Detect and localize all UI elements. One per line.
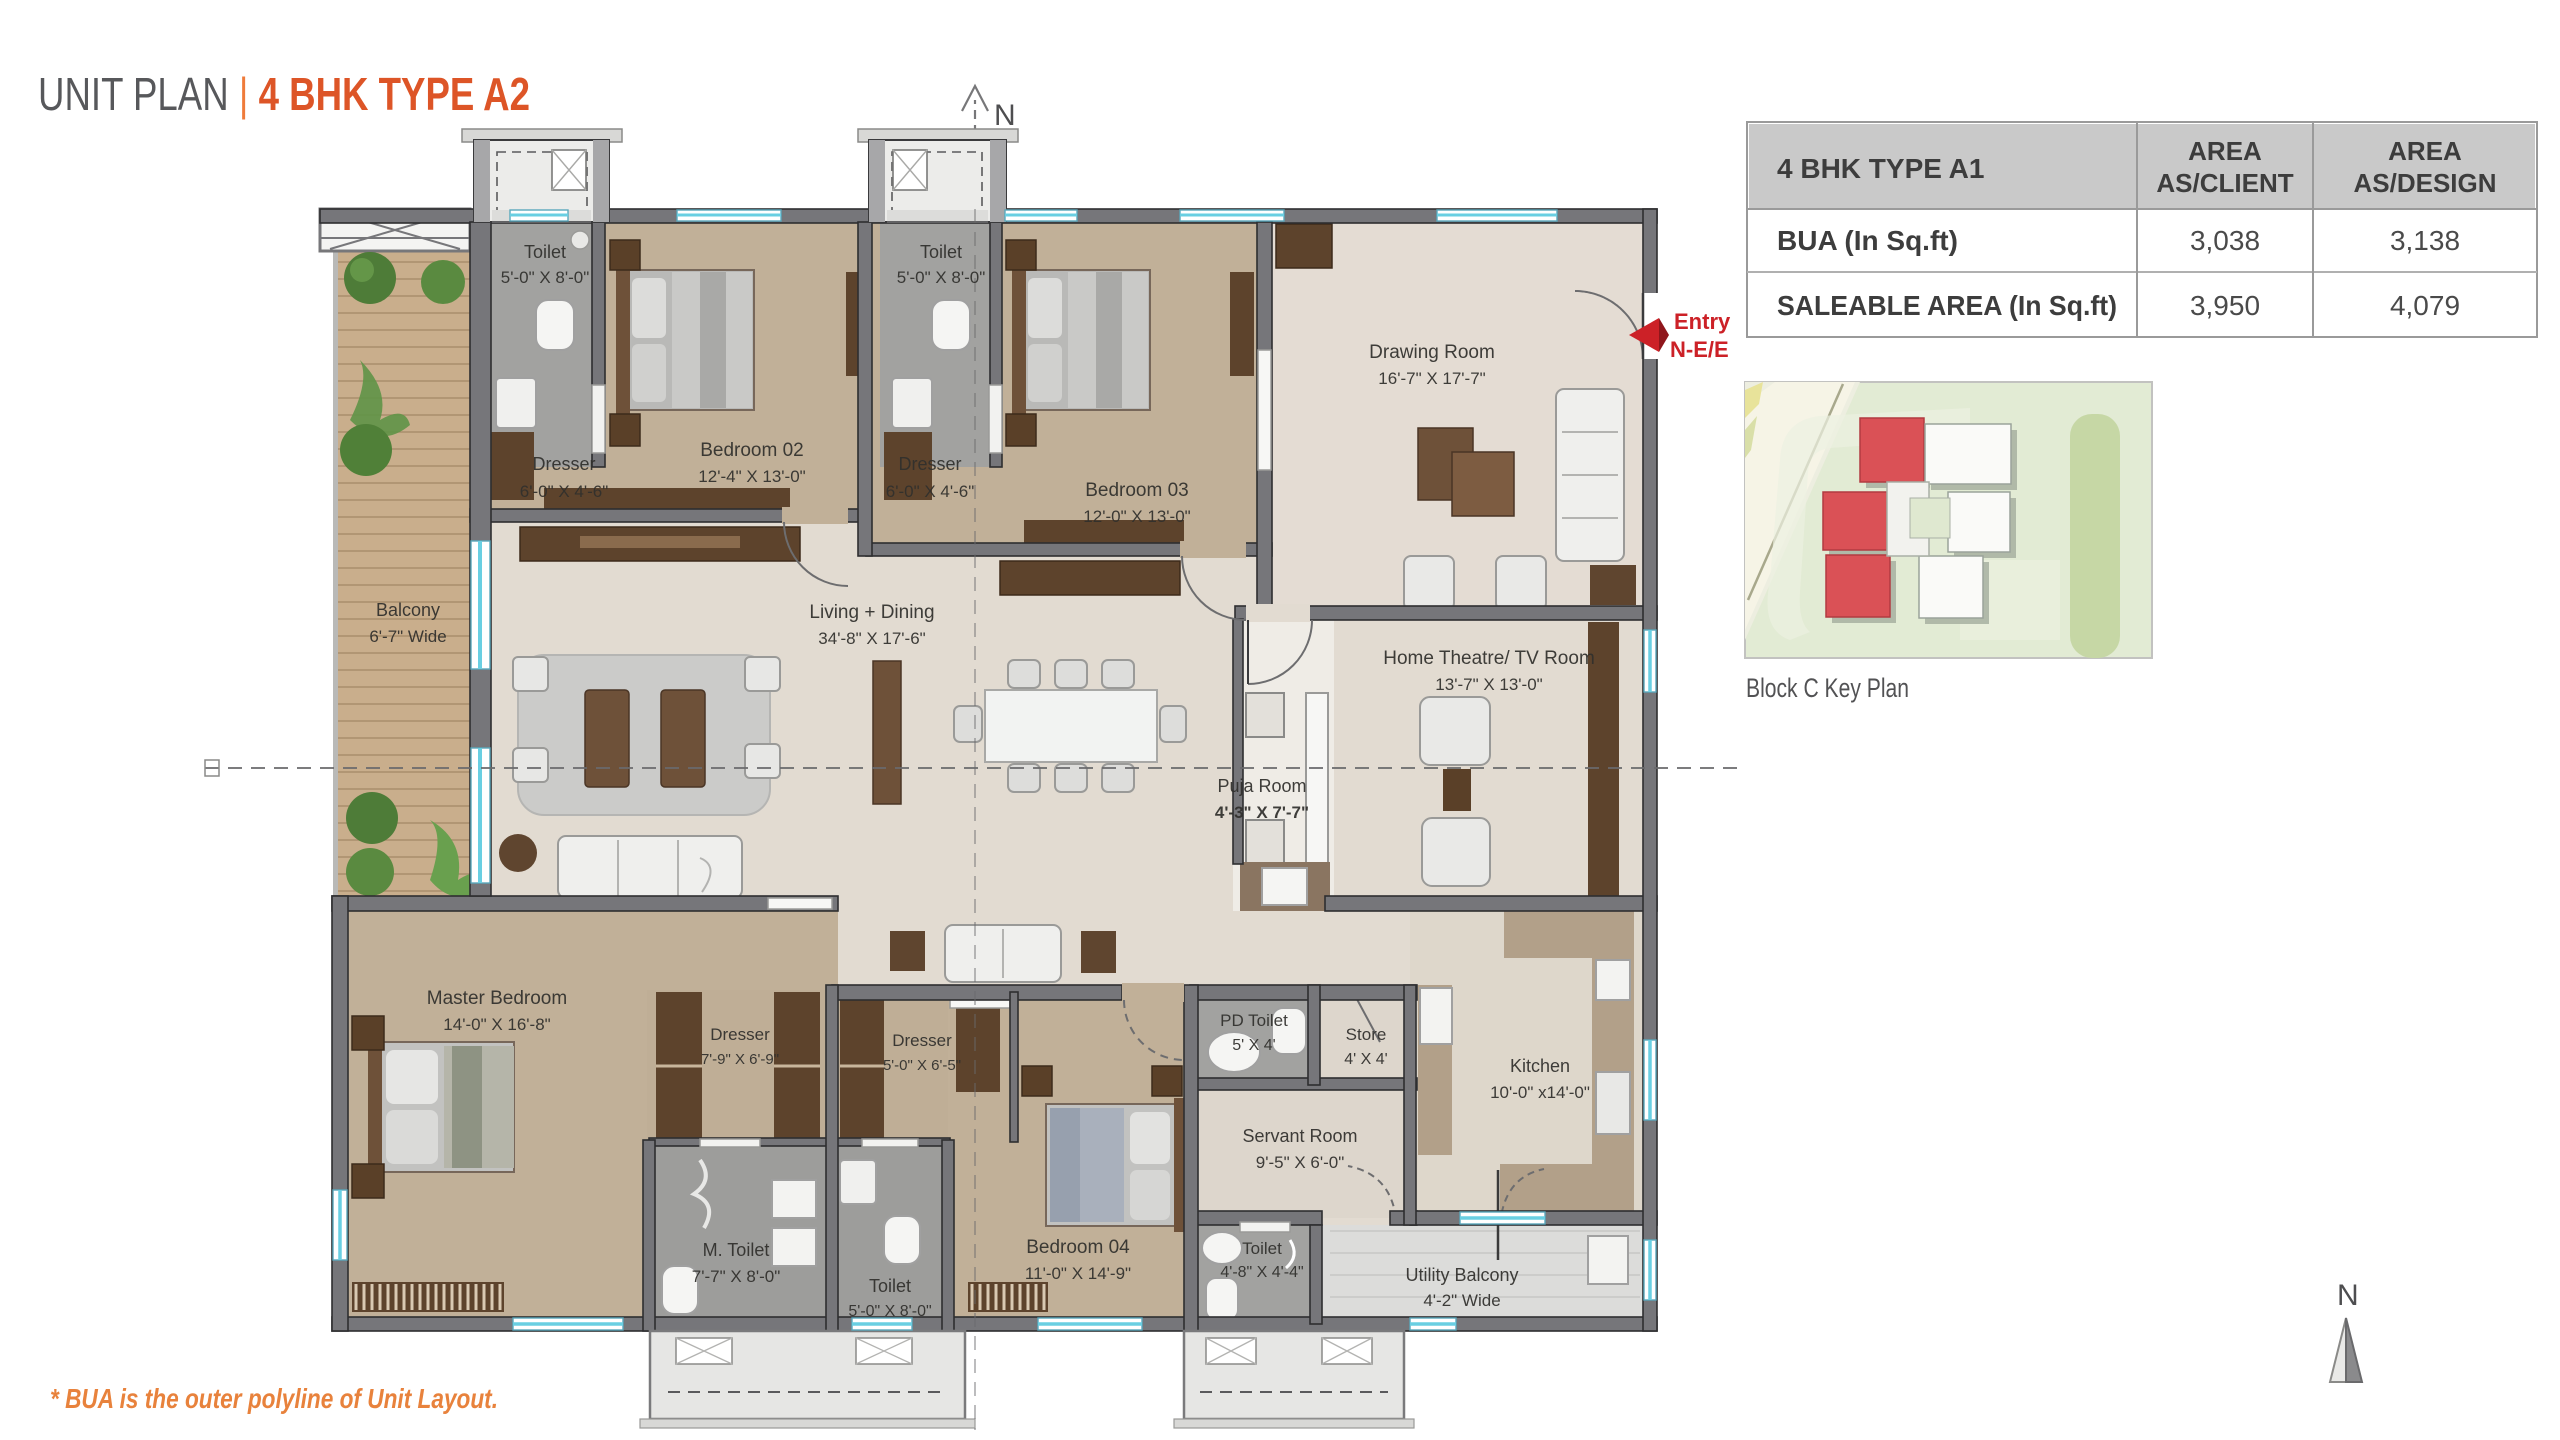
svg-text:12'-4" X 13'-0": 12'-4" X 13'-0": [698, 467, 805, 486]
svg-text:12'-0" X 13'-0": 12'-0" X 13'-0": [1083, 507, 1190, 526]
svg-text:M. Toilet: M. Toilet: [703, 1240, 770, 1260]
svg-text:Toilet: Toilet: [1242, 1239, 1282, 1258]
svg-text:7'-7" X 8'-0": 7'-7" X 8'-0": [692, 1267, 781, 1286]
svg-text:7'-9" X 6'-9": 7'-9" X 6'-9": [701, 1051, 779, 1068]
svg-text:5'-0" X 8'-0": 5'-0" X 8'-0": [501, 268, 590, 287]
svg-text:5' X 4': 5' X 4': [1232, 1037, 1275, 1054]
svg-text:Drawing Room: Drawing Room: [1369, 342, 1495, 363]
svg-text:14'-0" X 16'-8": 14'-0" X 16'-8": [443, 1015, 550, 1034]
svg-text:Dresser: Dresser: [898, 454, 961, 474]
svg-text:Balcony: Balcony: [376, 600, 440, 620]
svg-text:Toilet: Toilet: [920, 242, 962, 262]
svg-text:4'-3" X 7'-7": 4'-3" X 7'-7": [1215, 803, 1309, 822]
svg-text:3,950: 3,950: [2190, 290, 2260, 321]
svg-text:11'-0" X 14'-9": 11'-0" X 14'-9": [1025, 1264, 1131, 1283]
svg-text:4 BHK TYPE A1: 4 BHK TYPE A1: [1777, 153, 1984, 184]
svg-text:Block C Key Plan: Block C Key Plan: [1746, 673, 1909, 703]
svg-text:Servant Room: Servant Room: [1242, 1126, 1357, 1146]
svg-text:PD Toilet: PD Toilet: [1220, 1011, 1288, 1030]
svg-text:4' X 4': 4' X 4': [1344, 1051, 1387, 1068]
svg-text:Entry: Entry: [1674, 309, 1731, 334]
svg-text:5'-0" X 8'-0": 5'-0" X 8'-0": [848, 1303, 931, 1320]
svg-text:Toilet: Toilet: [524, 242, 566, 262]
svg-text:10'-0" x14'-0": 10'-0" x14'-0": [1490, 1083, 1590, 1102]
svg-text:AS/CLIENT: AS/CLIENT: [2156, 168, 2293, 198]
svg-text:BUA (In Sq.ft): BUA (In Sq.ft): [1777, 225, 1958, 256]
svg-text:Bedroom 03: Bedroom 03: [1085, 480, 1189, 501]
svg-text:Dresser: Dresser: [710, 1025, 770, 1044]
svg-text:AREA: AREA: [2188, 136, 2262, 166]
svg-text:Home Theatre/ TV Room: Home Theatre/ TV Room: [1383, 648, 1595, 669]
svg-text:Master Bedroom: Master Bedroom: [427, 988, 567, 1009]
svg-text:5'-0" X 6'-5": 5'-0" X 6'-5": [883, 1057, 961, 1074]
svg-text:Puja Room: Puja Room: [1217, 776, 1306, 796]
svg-text:3,038: 3,038: [2190, 225, 2260, 256]
svg-text:6'-0" X 4'-6": 6'-0" X 4'-6": [520, 482, 609, 501]
svg-text:Kitchen: Kitchen: [1510, 1056, 1570, 1076]
svg-text:Toilet: Toilet: [869, 1276, 911, 1296]
svg-text:N-E/E: N-E/E: [1670, 337, 1729, 362]
svg-text:* BUA is the outer polyline of: * BUA is the outer polyline of Unit Layo…: [50, 1383, 498, 1414]
svg-text:5'-0" X 8'-0": 5'-0" X 8'-0": [897, 268, 986, 287]
svg-text:13'-7" X 13'-0": 13'-7" X 13'-0": [1435, 675, 1542, 694]
svg-text:34'-8" X 17'-6": 34'-8" X 17'-6": [818, 629, 925, 648]
svg-text:Store: Store: [1346, 1025, 1387, 1044]
svg-text:4,079: 4,079: [2390, 290, 2460, 321]
svg-text:4'-2" Wide: 4'-2" Wide: [1423, 1291, 1500, 1310]
svg-text:AS/DESIGN: AS/DESIGN: [2353, 168, 2496, 198]
svg-text:Dresser: Dresser: [892, 1031, 952, 1050]
svg-text:6'-7" Wide: 6'-7" Wide: [369, 627, 446, 646]
svg-text:UNIT PLAN | 4 BHK TYPE A2: UNIT PLAN | 4 BHK TYPE A2: [38, 68, 530, 120]
svg-text:6'-0" X 4'-6": 6'-0" X 4'-6": [886, 482, 975, 501]
svg-text:Utility Balcony: Utility Balcony: [1405, 1265, 1518, 1285]
svg-text:3,138: 3,138: [2390, 225, 2460, 256]
svg-text:Bedroom 02: Bedroom 02: [700, 440, 804, 461]
svg-text:16'-7" X 17'-7": 16'-7" X 17'-7": [1378, 369, 1485, 388]
svg-text:N: N: [2337, 1279, 2359, 1312]
svg-text:4'-8" X 4'-4": 4'-8" X 4'-4": [1220, 1264, 1303, 1281]
svg-text:N: N: [994, 99, 1016, 132]
svg-text:SALEABLE AREA (In Sq.ft): SALEABLE AREA (In Sq.ft): [1777, 290, 2117, 321]
svg-text:Bedroom 04: Bedroom 04: [1026, 1237, 1130, 1258]
svg-text:Dresser: Dresser: [532, 454, 595, 474]
svg-text:Living + Dining: Living + Dining: [809, 602, 934, 623]
svg-text:AREA: AREA: [2388, 136, 2462, 166]
svg-text:9'-5" X 6'-0": 9'-5" X 6'-0": [1256, 1153, 1345, 1172]
